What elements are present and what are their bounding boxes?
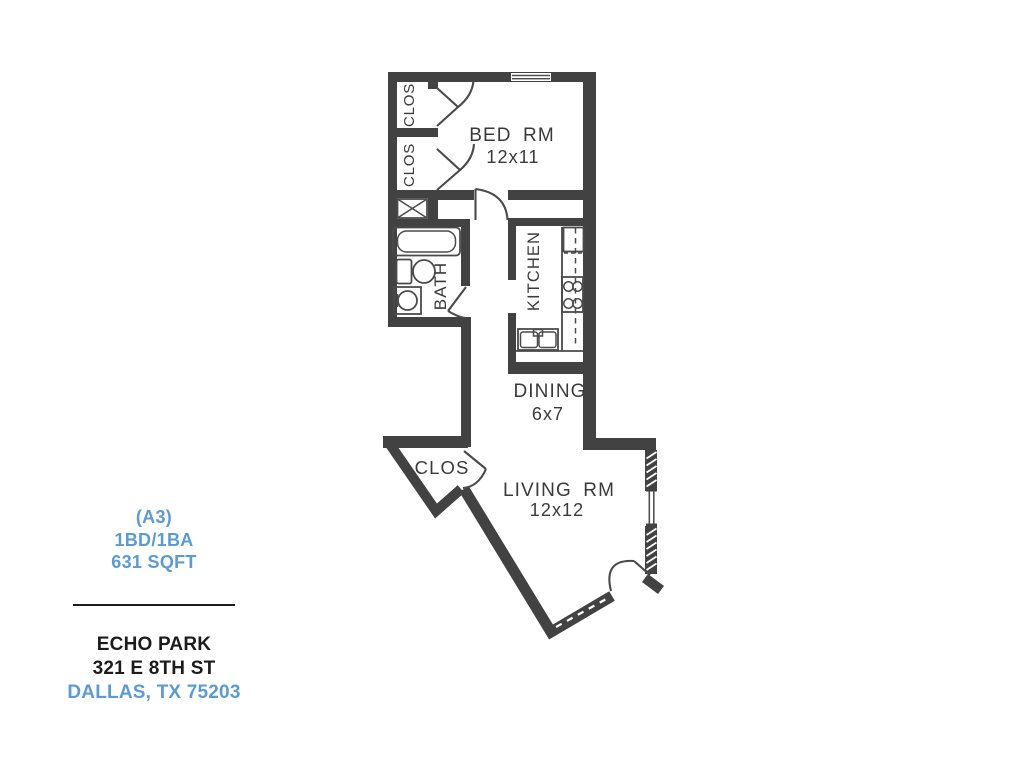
bathtub xyxy=(393,228,460,256)
room-dims-dining: 6x7 xyxy=(532,404,564,424)
room-label-living: LIVING RM xyxy=(503,480,615,501)
room-label-closet2: CLOS xyxy=(401,143,418,187)
property-name: ECHO PARK xyxy=(40,633,268,657)
room-label-dining: DINING xyxy=(513,381,586,402)
room-label-kitchen: KITCHEN xyxy=(525,231,543,311)
entry-door xyxy=(609,561,650,591)
room-dims-living: 12x12 xyxy=(530,500,585,520)
unit-code: (A3) xyxy=(40,506,268,529)
divider-line xyxy=(73,604,235,607)
refrigerator xyxy=(564,228,584,254)
room-label-bath: BATH xyxy=(431,262,450,310)
property-info: ECHO PARK 321 E 8TH ST DALLAS, TX 75203 xyxy=(40,633,268,705)
toilet xyxy=(397,260,436,284)
closet-bifold-door-2 xyxy=(437,144,474,190)
bedroom-window xyxy=(511,73,551,81)
range-4-burner xyxy=(562,277,583,312)
closet-bifold-door-1 xyxy=(437,81,474,126)
unit-info: (A3) 1BD/1BA 631 SQFT xyxy=(40,506,268,574)
double-sink xyxy=(518,329,558,350)
bath-door xyxy=(448,287,466,318)
room-label-closet1: CLOS xyxy=(401,83,418,127)
unit-area: 631 SQFT xyxy=(40,551,268,574)
floorplan-sheet: BED RM 12x11 KITCHEN DINING 6x7 LIVING R… xyxy=(0,0,1024,768)
room-label-entry-closet: CLOS xyxy=(415,457,470,478)
room-label-bedroom: BED RM xyxy=(469,125,555,146)
room-dims-bedroom: 12x11 xyxy=(486,147,539,167)
water-heater xyxy=(398,199,428,218)
bedroom-door xyxy=(476,189,508,220)
vanity-sink xyxy=(394,287,421,314)
living-window xyxy=(646,489,657,526)
property-city-state-zip: DALLAS, TX 75203 xyxy=(40,681,268,705)
unit-type: 1BD/1BA xyxy=(40,529,268,552)
info-panel: (A3) 1BD/1BA 631 SQFT ECHO PARK 321 E 8T… xyxy=(40,506,268,705)
property-address: 321 E 8TH ST xyxy=(40,657,268,681)
